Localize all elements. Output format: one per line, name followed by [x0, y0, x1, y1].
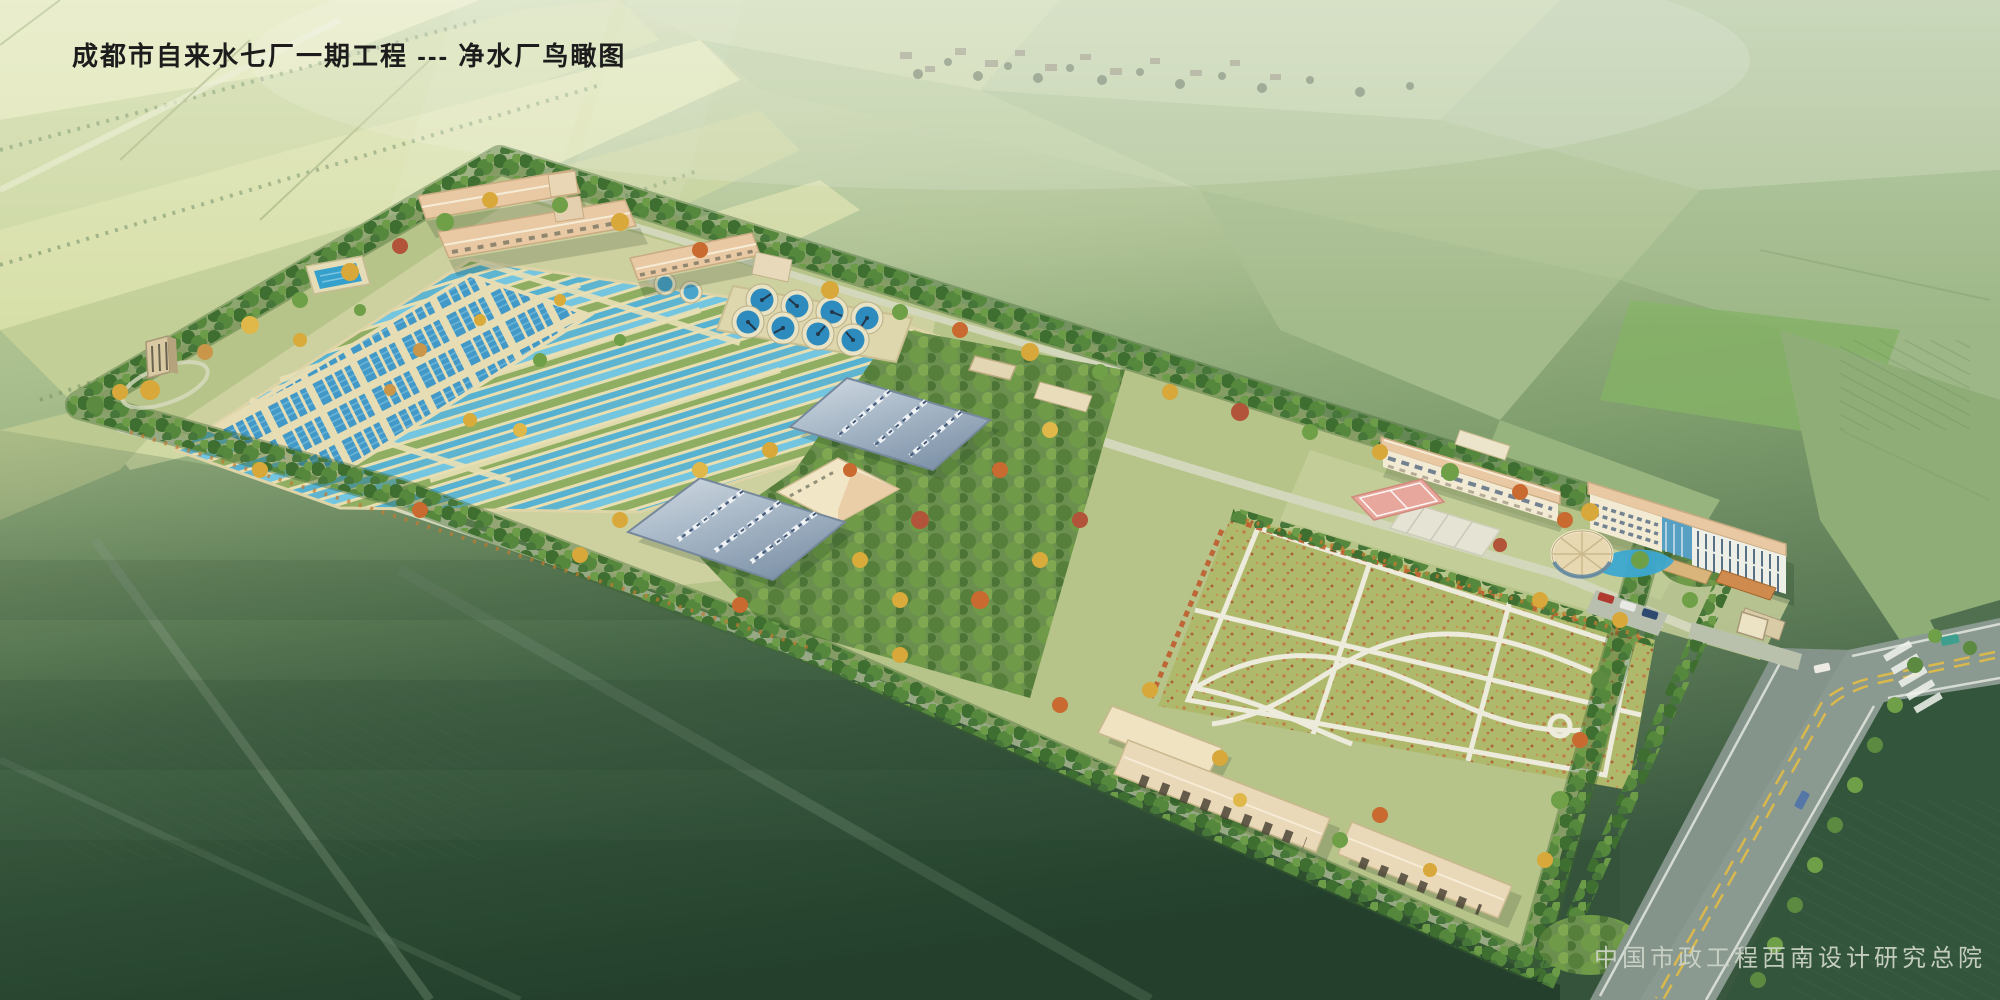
aerial-rendering: 成都市自来水七厂一期工程 --- 净水厂鸟瞰图 中国市政工程西南设计研究总院 [0, 0, 2000, 1000]
rendering-canvas [0, 0, 2000, 1000]
credit-text: 中国市政工程西南设计研究总院 [1594, 938, 1986, 973]
page-title: 成都市自来水七厂一期工程 --- 净水厂鸟瞰图 [72, 36, 626, 73]
